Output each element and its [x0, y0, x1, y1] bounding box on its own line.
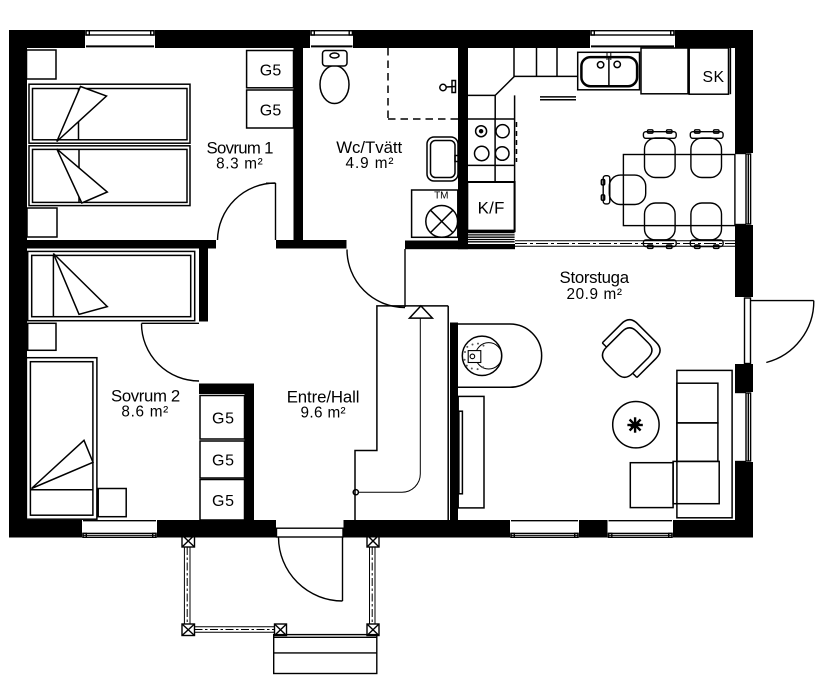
svg-text:G5: G5	[260, 62, 282, 79]
svg-text:SK: SK	[703, 69, 725, 86]
svg-text:8.6 m²: 8.6 m²	[121, 404, 168, 421]
svg-text:TM: TM	[434, 190, 448, 201]
svg-text:G5: G5	[212, 410, 234, 427]
svg-text:Sovrum 1: Sovrum 1	[207, 138, 274, 157]
svg-text:Storstuga: Storstuga	[560, 268, 630, 287]
svg-text:20.9 m²: 20.9 m²	[566, 286, 622, 303]
svg-text:G5: G5	[260, 102, 282, 119]
svg-text:K/F: K/F	[478, 199, 505, 218]
svg-text:8.3 m²: 8.3 m²	[216, 156, 263, 173]
svg-text:9.6 m²: 9.6 m²	[301, 404, 346, 421]
svg-text:G5: G5	[212, 493, 234, 510]
svg-text:4.9 m²: 4.9 m²	[346, 155, 394, 172]
svg-text:G5: G5	[212, 453, 234, 470]
svg-text:Sovrum 2: Sovrum 2	[111, 386, 180, 405]
